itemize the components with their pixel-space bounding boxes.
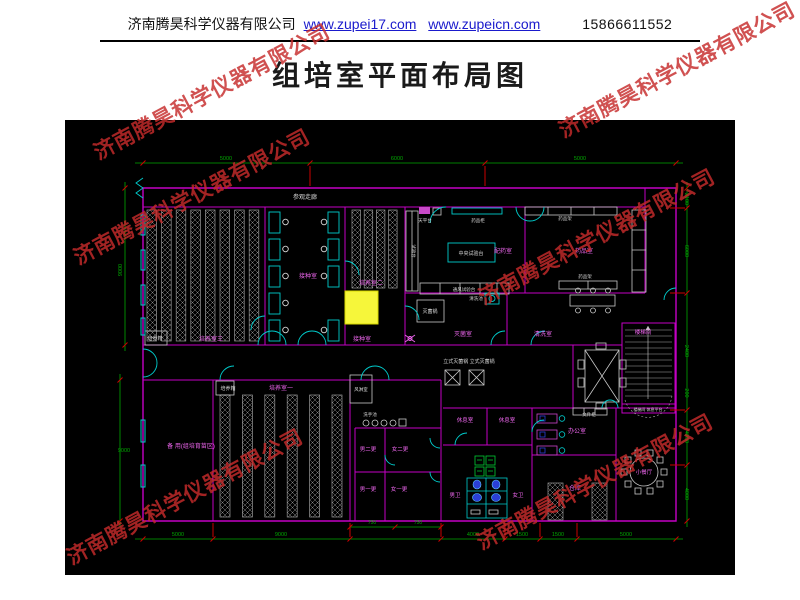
room-label: 天平台: [418, 217, 432, 224]
page-title: 组培室平面布局图: [0, 54, 800, 94]
room-label: 配药室: [494, 247, 512, 255]
room-label: 休息室: [499, 416, 516, 424]
header: 济南腾昊科学仪器有限公司 www.zupei17.com www.zupeicn…: [0, 14, 800, 34]
room-label: 楼梯间: [635, 328, 652, 336]
dim-label: 4000: [467, 532, 479, 538]
dim-label: 2100: [683, 193, 689, 205]
dim-label: 5000: [172, 532, 184, 538]
room-label: 通风试验台: [453, 286, 476, 293]
room-label: 灭菌锅: [422, 308, 437, 315]
balance-table: [419, 207, 430, 214]
highlight-marker: [345, 291, 378, 324]
dim-label: 4000: [683, 431, 689, 443]
room-label: 清洗池: [469, 295, 483, 302]
dim-label: 1500: [516, 532, 528, 538]
room-label: 中央试验台: [458, 250, 483, 257]
dim-label: 5000: [220, 156, 232, 162]
dim-label: 5000: [574, 156, 586, 162]
dim-label: 6000: [391, 156, 403, 162]
room-label: 培养室一: [269, 384, 293, 392]
dim-label: 200: [683, 388, 689, 397]
room-label: 男二更: [360, 446, 377, 453]
toilet-fixtures: [467, 456, 507, 518]
room-label: 备 用(组培育苗区): [167, 442, 215, 450]
room-label: 休息室: [457, 416, 474, 424]
room-label: 接种室: [299, 272, 317, 280]
room-label: 培养室三: [199, 335, 223, 343]
dim-label: 750: [414, 520, 423, 526]
room-label: 楼梯间 休息平台: [633, 406, 662, 412]
room-label: 药品架: [578, 273, 592, 280]
floor-plan: 参观走廊培养箱培养室三接种室培养室二接种室天平台药品柜中央试验台配药室药品架药品…: [65, 120, 735, 575]
room-label: 试验台: [410, 244, 417, 258]
dim-label: 9000: [275, 532, 287, 538]
room-label: 清洗室: [534, 330, 552, 338]
room-label: 灭菌室: [454, 330, 472, 338]
dimension-labels: 5000600050005000900040001500150050007507…: [118, 156, 689, 538]
phone-number: 15866611552: [582, 16, 672, 32]
dim-label: 4000: [683, 488, 689, 500]
room-label: 小餐厅: [636, 468, 653, 476]
room-label: 参观走廊: [293, 193, 317, 201]
room-label: 培养室二: [359, 279, 383, 287]
floor-plan-canvas: 参观走廊培养箱培养室三接种室培养室二接种室天平台药品柜中央试验台配药室药品架药品…: [65, 120, 735, 575]
room-label: 接种室: [353, 335, 371, 343]
room-label: 办公室: [568, 427, 586, 435]
room-label: 立式灭菌锅 立式灭菌锅: [443, 358, 494, 365]
equipment-symbol: [405, 335, 415, 342]
dim-label: 2400: [683, 345, 689, 357]
room-label: 女卫: [512, 491, 524, 499]
header-divider: [100, 40, 700, 42]
culture-racks: [147, 210, 607, 520]
room-label: 男一更: [360, 486, 377, 493]
page: { "header": { "company": "济南腾昊科学仪器有限公司",…: [0, 0, 800, 600]
room-label: 药品架: [558, 215, 572, 222]
dim-label: 6000: [683, 245, 689, 257]
dim-label: 9000: [118, 448, 130, 454]
room-label: 药品柜: [471, 217, 485, 224]
room-label: 风淋室: [354, 386, 368, 393]
room-label: 女二更: [392, 445, 409, 453]
room-label: 洗手池: [363, 411, 377, 418]
dim-label: 9000: [118, 264, 124, 276]
website-link-2[interactable]: www.zupeicn.com: [428, 16, 540, 32]
room-label: 药品室: [575, 247, 593, 255]
room-label: 仓库: [569, 484, 581, 492]
room-label: 文件柜: [582, 411, 596, 418]
dim-label: 5000: [620, 532, 632, 538]
room-label: 培养箱: [220, 385, 235, 392]
room-label: 男卫: [449, 492, 461, 499]
room-label: 女一更: [391, 485, 408, 493]
company-name: 济南腾昊科学仪器有限公司: [128, 16, 296, 32]
dim-label: 1500: [552, 532, 564, 538]
room-label: 培养箱: [147, 335, 162, 342]
dim-label: 750: [368, 520, 377, 526]
website-link-1[interactable]: www.zupei17.com: [304, 16, 417, 32]
